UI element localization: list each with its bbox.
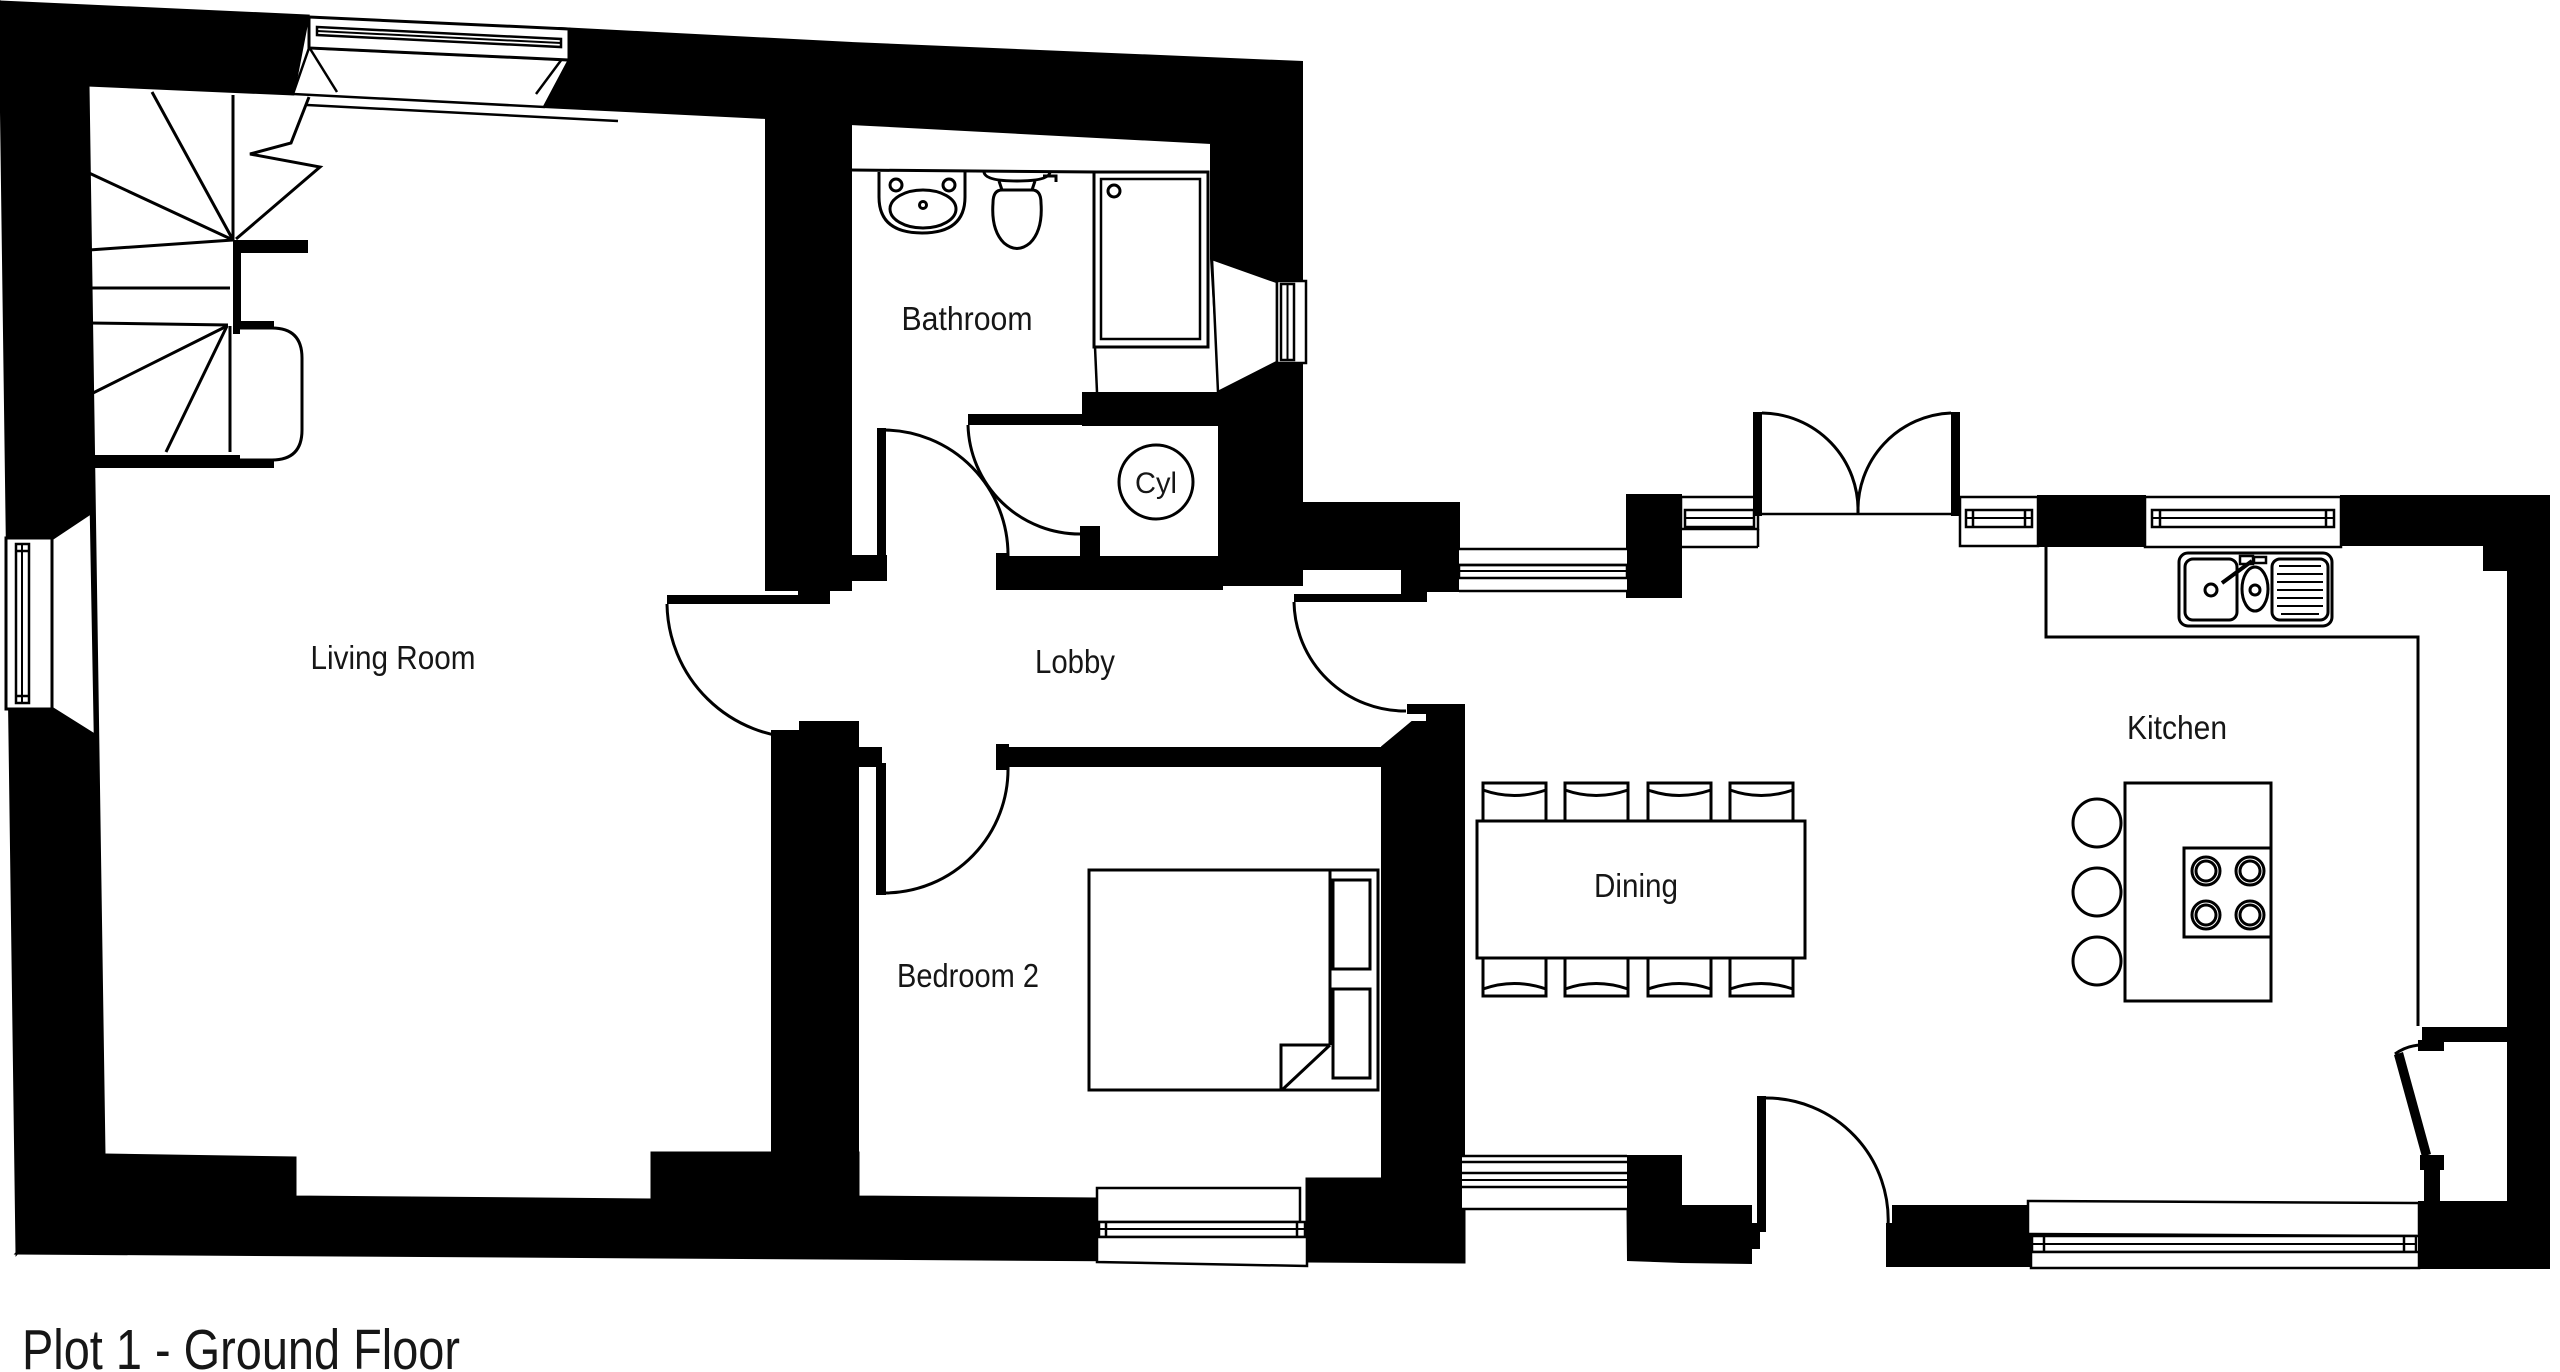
svg-text:Plot 1 - Ground Floor: Plot 1 - Ground Floor bbox=[22, 1318, 460, 1372]
svg-text:Dining: Dining bbox=[1594, 867, 1678, 904]
svg-text:Living Room: Living Room bbox=[311, 639, 476, 676]
svg-text:Lobby: Lobby bbox=[1035, 643, 1115, 680]
svg-text:Cyl: Cyl bbox=[1135, 467, 1177, 500]
svg-text:Kitchen: Kitchen bbox=[2127, 709, 2227, 746]
svg-text:Bathroom: Bathroom bbox=[902, 300, 1033, 337]
svg-text:Bedroom 2: Bedroom 2 bbox=[897, 957, 1039, 994]
